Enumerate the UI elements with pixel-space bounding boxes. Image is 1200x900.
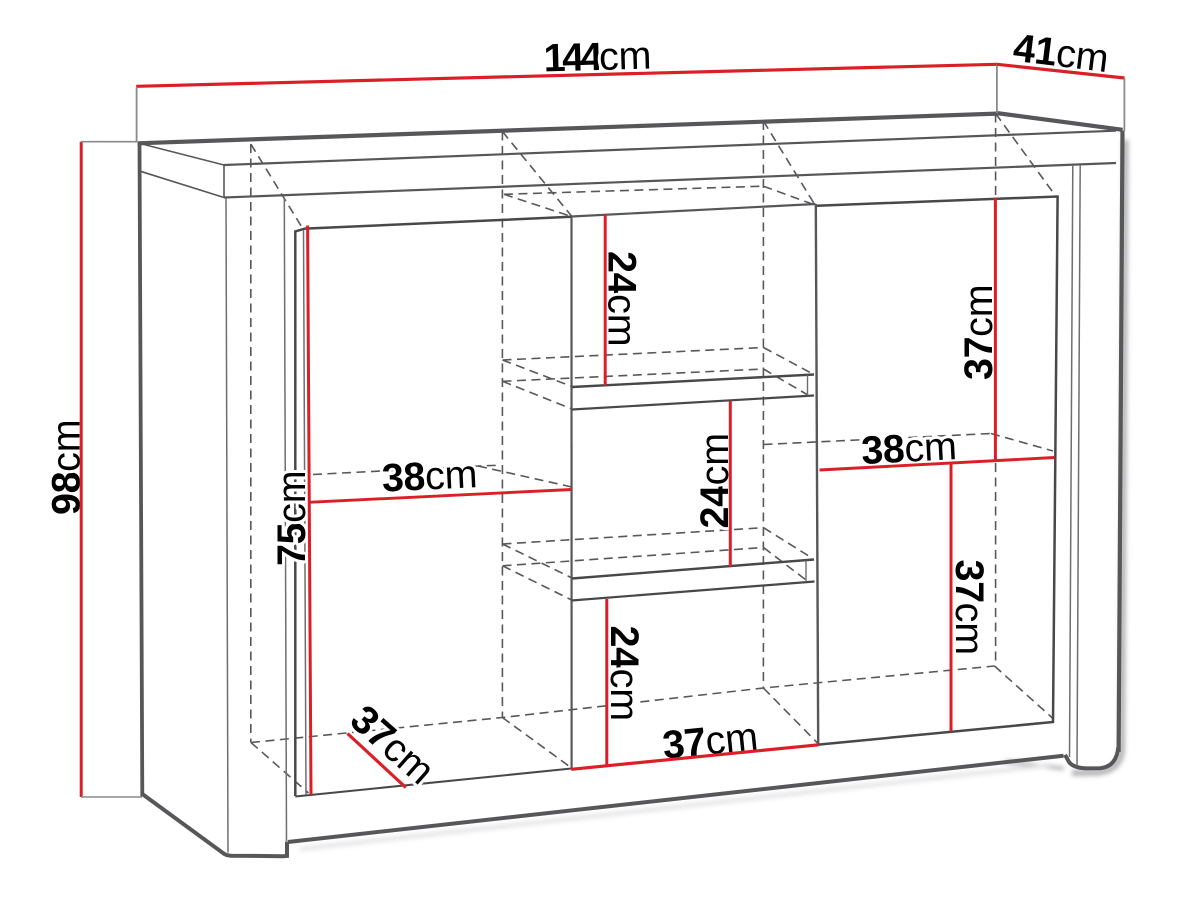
svg-text:24cm: 24cm bbox=[602, 626, 646, 721]
svg-text:37cm: 37cm bbox=[947, 560, 991, 655]
svg-text:75cm: 75cm bbox=[270, 471, 314, 566]
svg-text:38cm: 38cm bbox=[381, 452, 478, 500]
